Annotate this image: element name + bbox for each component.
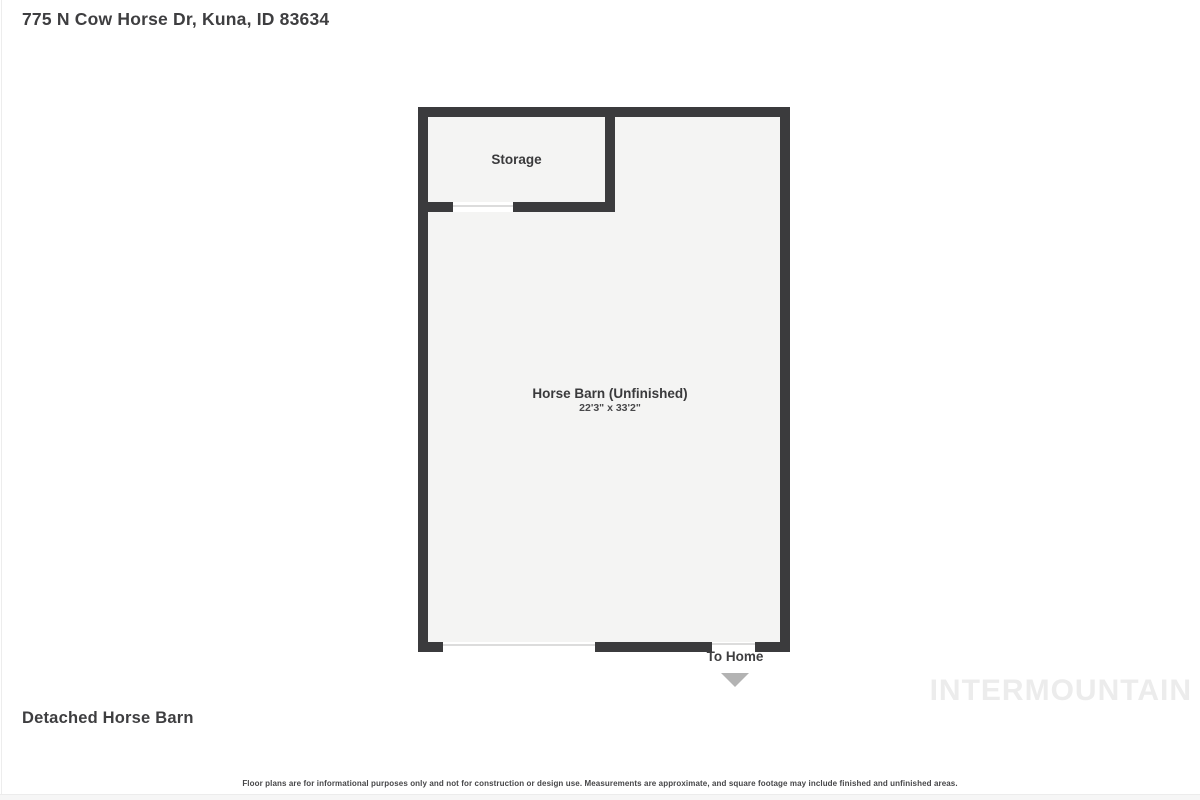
exterior-wall-left [418,107,428,652]
storage-room-label: Storage [428,152,605,167]
to-home-label: To Home [700,649,770,664]
horse-barn-room-label: Horse Barn (Unfinished) [424,386,796,401]
garage-door-line [443,644,595,646]
storage-door-opening [453,202,513,212]
to-home-door-line [712,643,755,645]
floor-plan: Storage Horse Barn (Unfinished) 22'3" x … [418,107,790,652]
exterior-wall-bottom-middle [595,642,712,652]
horse-barn-dimensions: 22'3" x 33'2" [424,402,796,414]
plan-interior-fill [418,107,790,652]
plan-title: Detached Horse Barn [22,709,194,728]
storage-wall-right [605,107,615,212]
exterior-wall-top [418,107,790,117]
footer-strip [0,794,1200,800]
disclaimer-text: Floor plans are for informational purpos… [0,779,1200,788]
exterior-wall-right [780,107,790,652]
exterior-wall-bottom-left [418,642,443,652]
garage-door-opening [443,642,595,652]
intermountain-watermark: INTERMOUNTAIN [930,674,1192,708]
storage-wall-bottom-right [513,202,615,212]
storage-door-line [453,205,513,207]
to-home-arrow-icon [721,673,749,687]
storage-wall-bottom-left [418,202,453,212]
page-left-edge-line [1,0,2,800]
property-address: 775 N Cow Horse Dr, Kuna, ID 83634 [22,9,329,30]
